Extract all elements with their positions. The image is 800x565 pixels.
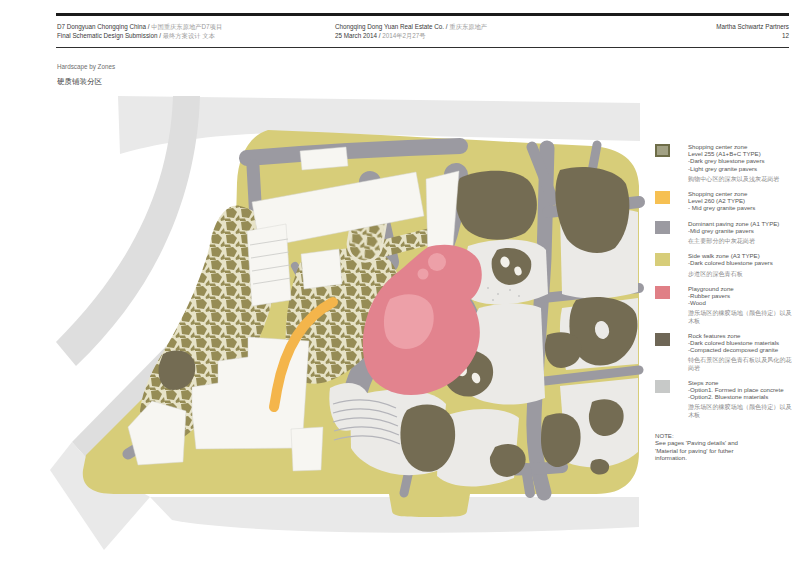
legend-line-cn: 步道区的深色青石板 xyxy=(688,270,773,277)
client-name-en: Chongqing Dong Yuan Real Estate Co. / xyxy=(335,23,448,30)
legend-line: -Rubber pavers xyxy=(688,292,797,299)
firm-name: Martha Schwartz Partners xyxy=(716,22,789,31)
legend-item: Rock features zone-Dark colored blueston… xyxy=(655,332,797,371)
legend-line: -Light grey granite pavers xyxy=(688,165,779,172)
legend-item-text: Shopping center zoneLevel 255 (A1+B+C TY… xyxy=(688,143,779,182)
sheet-date-cn: 2014年2月27号 xyxy=(382,32,425,39)
legend-swatch xyxy=(655,253,670,266)
legend-line-cn: 购物中心区的深灰以及浅灰花岗岩 xyxy=(688,175,779,182)
legend-item: Shopping center zoneLevel 255 (A1+B+C TY… xyxy=(655,143,797,182)
legend-item-text: Rock features zone-Dark colored blueston… xyxy=(688,332,797,371)
legend-line-cn: 游乐场区的橡胶场地（颜色待定）以及木板 xyxy=(688,403,797,417)
legend-swatch xyxy=(655,221,670,234)
legend-line: Playground zone xyxy=(688,285,797,292)
note-line: See pages 'Paving details' and xyxy=(655,439,797,446)
header-rule-thick xyxy=(56,13,789,16)
legend-item-text: Playground zone-Rubber pavers-Wood游乐场区的橡… xyxy=(688,285,797,324)
header-client-block: Chongqing Dong Yuan Real Estate Co. / 重庆… xyxy=(335,22,487,40)
header-firm-block: Martha Schwartz Partners 12 xyxy=(716,22,789,40)
project-title: D7 Dongyuan Chongqing China / 中国重庆东原地产D7… xyxy=(57,22,222,31)
legend-line: -Option1. Formed in place concrete xyxy=(688,386,797,393)
sheet-date-en: 25 March 2014 / xyxy=(335,32,381,39)
note-line: information. xyxy=(655,454,797,461)
legend-swatch xyxy=(655,286,670,299)
legend-swatch xyxy=(655,380,670,393)
submission-title: Final Schematic Design Submission / 最终方案… xyxy=(57,31,222,40)
client-name: Chongqing Dong Yuan Real Estate Co. / 重庆… xyxy=(335,22,487,31)
sheet-page: D7 Dongyuan Chongqing China / 中国重庆东原地产D7… xyxy=(0,0,800,565)
submission-title-cn: 最终方案设计 文本 xyxy=(163,32,215,39)
note-line: NOTE: xyxy=(655,432,797,439)
legend: Shopping center zoneLevel 255 (A1+B+C TY… xyxy=(655,143,797,462)
page-title-cn: 硬质铺装分区 xyxy=(57,77,102,87)
legend-line: Level 260 (A2 TYPE) xyxy=(688,197,755,204)
legend-line: -Dark colored bluestone pavers xyxy=(688,259,773,266)
submission-title-en: Final Schematic Design Submission / xyxy=(57,32,161,39)
legend-line: Shopping center zone xyxy=(688,143,779,150)
legend-item: Steps zone-Option1. Formed in place conc… xyxy=(655,379,797,418)
legend-item-text: Shopping center zoneLevel 260 (A2 TYPE)-… xyxy=(688,190,755,212)
legend-swatch xyxy=(655,333,670,346)
legend-line: -Dark colored bluestone materials xyxy=(688,339,797,346)
legend-line: Steps zone xyxy=(688,379,797,386)
legend-line: Side walk zone (A3 TYPE) xyxy=(688,252,773,259)
legend-item-text: Side walk zone (A3 TYPE)-Dark colored bl… xyxy=(688,252,773,277)
legend-line: -Mid grey granite pavers xyxy=(688,227,779,234)
legend-line: Shopping center zone xyxy=(688,190,755,197)
legend-line: Level 255 (A1+B+C TYPE) xyxy=(688,150,779,157)
project-title-en: D7 Dongyuan Chongqing China / xyxy=(57,23,149,30)
legend-line: -Compacted decomposed granite xyxy=(688,346,797,353)
legend-line: - Mid grey granite pavers xyxy=(688,204,755,211)
legend-line: -Option2. Bluestone materials xyxy=(688,393,797,400)
legend-item: Side walk zone (A3 TYPE)-Dark colored bl… xyxy=(655,252,797,277)
header-project-block: D7 Dongyuan Chongqing China / 中国重庆东原地产D7… xyxy=(57,22,222,40)
legend-line: -Wood xyxy=(688,299,797,306)
legend-item: Shopping center zoneLevel 260 (A2 TYPE)-… xyxy=(655,190,797,212)
legend-item: Dominant paving zone (A1 TYPE)-Mid grey … xyxy=(655,220,797,245)
legend-swatch xyxy=(655,144,670,157)
project-title-cn: 中国重庆东原地产D7项目 xyxy=(151,23,222,30)
legend-item-text: Dominant paving zone (A1 TYPE)-Mid grey … xyxy=(688,220,779,245)
sheet-date: 25 March 2014 / 2014年2月27号 xyxy=(335,31,487,40)
page-title: Hardscape by Zones xyxy=(57,63,115,70)
legend-note: NOTE: See pages 'Paving details' and 'Ma… xyxy=(655,432,797,462)
legend-item-text: Steps zone-Option1. Formed in place conc… xyxy=(688,379,797,418)
page-number: 12 xyxy=(716,31,789,40)
legend-line: Rock features zone xyxy=(688,332,797,339)
legend-line-cn: 在主要部分的中灰花岗岩 xyxy=(688,237,779,244)
legend-line-cn: 游乐场区的橡胶场地（颜色待定）以及木板 xyxy=(688,309,797,323)
legend-line: -Dark grey bluestone pavers xyxy=(688,157,779,164)
legend-line-cn: 特色石景区的深色青石板以及风化的花岗岩 xyxy=(688,356,797,370)
header-rule-thin xyxy=(56,47,789,48)
legend-line: Dominant paving zone (A1 TYPE) xyxy=(688,220,779,227)
legend-item: Playground zone-Rubber pavers-Wood游乐场区的橡… xyxy=(655,285,797,324)
client-name-cn: 重庆东原地产 xyxy=(449,23,487,30)
site-plan-map xyxy=(0,92,660,565)
legend-items: Shopping center zoneLevel 255 (A1+B+C TY… xyxy=(655,143,797,418)
note-line: 'Material for paving' for futher xyxy=(655,447,797,454)
legend-swatch xyxy=(655,191,670,204)
